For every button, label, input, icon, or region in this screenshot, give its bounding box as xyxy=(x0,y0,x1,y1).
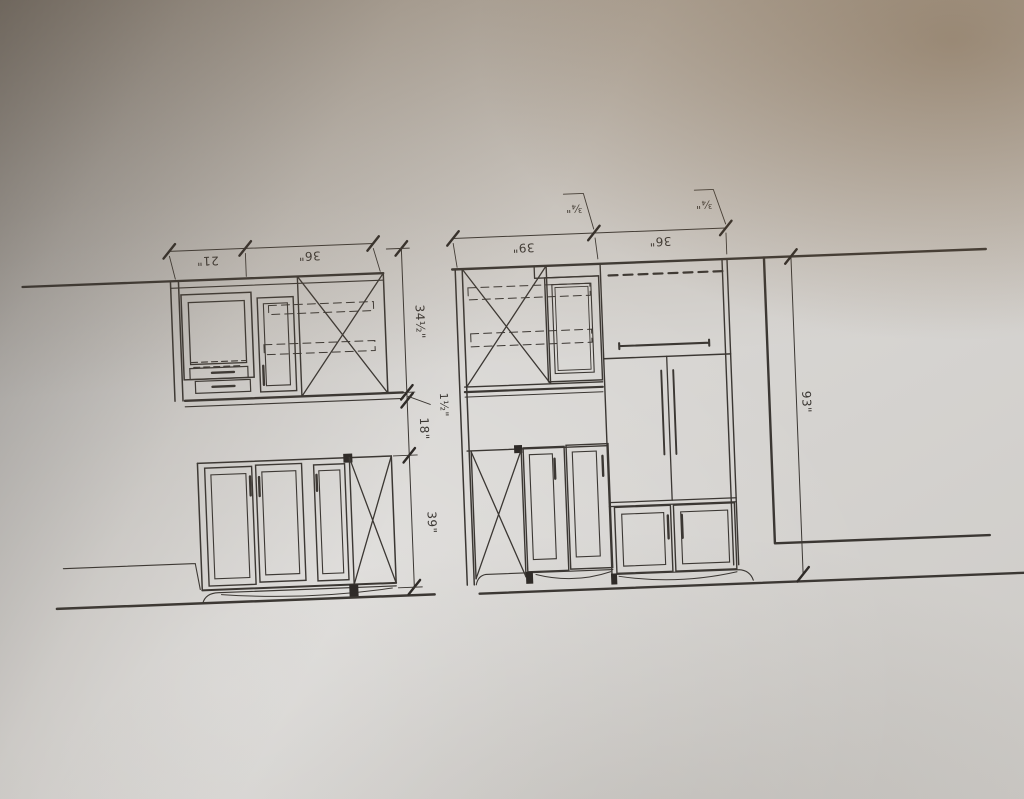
cabinet-door xyxy=(566,444,613,570)
dashed-shelf-band xyxy=(471,329,592,347)
floor-line xyxy=(23,273,384,287)
cabinet-bottom-line xyxy=(467,446,607,451)
countertop-line xyxy=(465,387,603,392)
soffit-line xyxy=(63,563,200,594)
height-dimension-chain xyxy=(401,248,414,587)
toe-kick-line xyxy=(171,280,384,288)
x-blocked-panel xyxy=(349,456,396,585)
base-cabinet-group xyxy=(460,264,603,397)
cabinet-door xyxy=(523,446,569,571)
door-handle xyxy=(316,475,317,491)
drawer-handle xyxy=(212,386,234,387)
blueprint-drawing: 21" 36" 34½" 1½" 18" 39" xyxy=(0,0,1024,799)
x-blocked-panel xyxy=(471,450,526,579)
dim-label: 39" xyxy=(512,240,535,255)
cabinet-door xyxy=(314,464,349,581)
dim-label: 21" xyxy=(196,253,219,268)
dim-label: 34½" xyxy=(412,304,427,339)
cabinet-bottom-line xyxy=(197,456,391,463)
door-handle xyxy=(555,459,556,479)
molding-corner-block xyxy=(349,584,358,597)
dim-label: 1½" xyxy=(437,393,451,418)
molding-corner-block xyxy=(611,573,617,584)
x-blocked-panel xyxy=(460,264,602,387)
cabinet-end-panels xyxy=(455,269,474,585)
cabinet-elevation-blueprint-photo: 21" 36" 34½" 1½" 18" 39" xyxy=(0,0,1024,799)
fridge-door-split xyxy=(667,356,673,500)
drawer-handle xyxy=(212,372,234,373)
door-handle xyxy=(602,456,603,476)
cabinet-sides xyxy=(197,456,396,590)
wall-outline xyxy=(764,249,990,543)
door-handle xyxy=(682,515,683,538)
ceiling-line xyxy=(57,594,435,609)
freezer-drawer-handle xyxy=(619,340,709,349)
dim-label: 18" xyxy=(417,417,432,440)
dim-label: 36" xyxy=(298,249,321,264)
refrigerator-cabinet xyxy=(599,258,753,585)
countertop-underline xyxy=(465,392,603,397)
door-handle xyxy=(259,477,260,496)
wall-cabinet-group xyxy=(467,442,613,586)
appliance-opening xyxy=(188,300,246,364)
molding-corner-block xyxy=(526,572,533,584)
door-handle xyxy=(668,515,669,538)
ceiling-line xyxy=(480,572,1024,593)
width-dimension-line xyxy=(169,244,373,252)
wall-cabinet-group xyxy=(197,452,396,603)
extension-lines xyxy=(385,248,422,588)
base-cabinet-group xyxy=(170,273,387,401)
dim-label: 93" xyxy=(799,391,814,414)
microwave-cabinet xyxy=(181,292,255,394)
dim-label: ¾" xyxy=(695,197,712,211)
cabinet-door xyxy=(614,505,672,573)
cabinet-door xyxy=(545,276,603,382)
x-blocked-panel xyxy=(297,273,388,396)
right-elevation: 39" 36" ¾" ¾" 93" xyxy=(445,177,1024,595)
dim-label: 39" xyxy=(424,511,439,534)
dim-label: 36" xyxy=(649,234,672,249)
door-handle xyxy=(250,476,251,495)
dim-label: ¾" xyxy=(565,201,582,215)
dashed-shelf-band xyxy=(264,341,375,355)
door-handle xyxy=(263,366,264,385)
height-dimension-line xyxy=(791,256,803,574)
vent-grille-dashed xyxy=(609,271,725,275)
cabinet-door xyxy=(673,503,736,571)
left-elevation: 21" 36" 34½" 1½" 18" 39" xyxy=(21,234,458,610)
cabinet-end-panels xyxy=(170,273,387,401)
cabinet-door xyxy=(256,463,306,582)
cabinet-door xyxy=(205,466,256,586)
